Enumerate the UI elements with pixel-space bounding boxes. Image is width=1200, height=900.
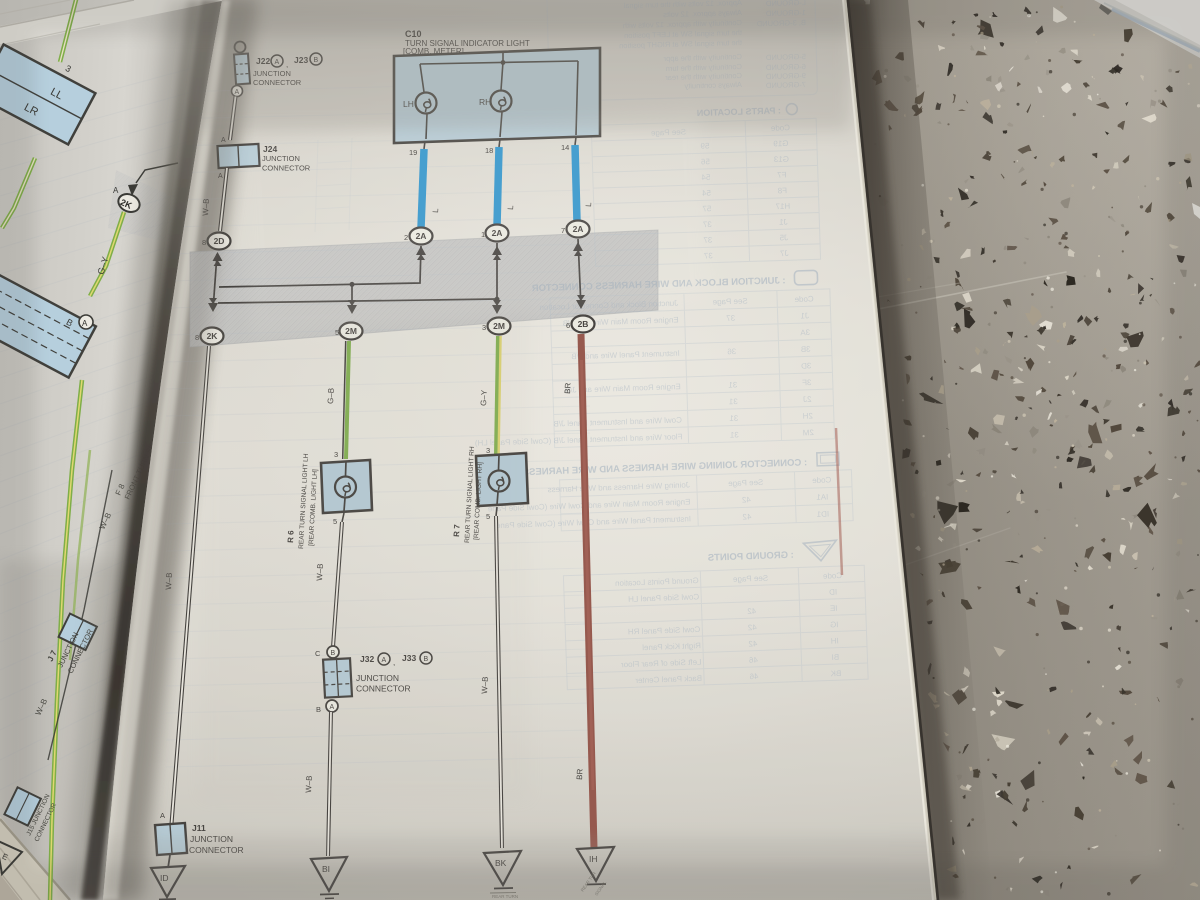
svg-text:A: A [113, 186, 119, 195]
svg-text:A: A [82, 319, 88, 328]
